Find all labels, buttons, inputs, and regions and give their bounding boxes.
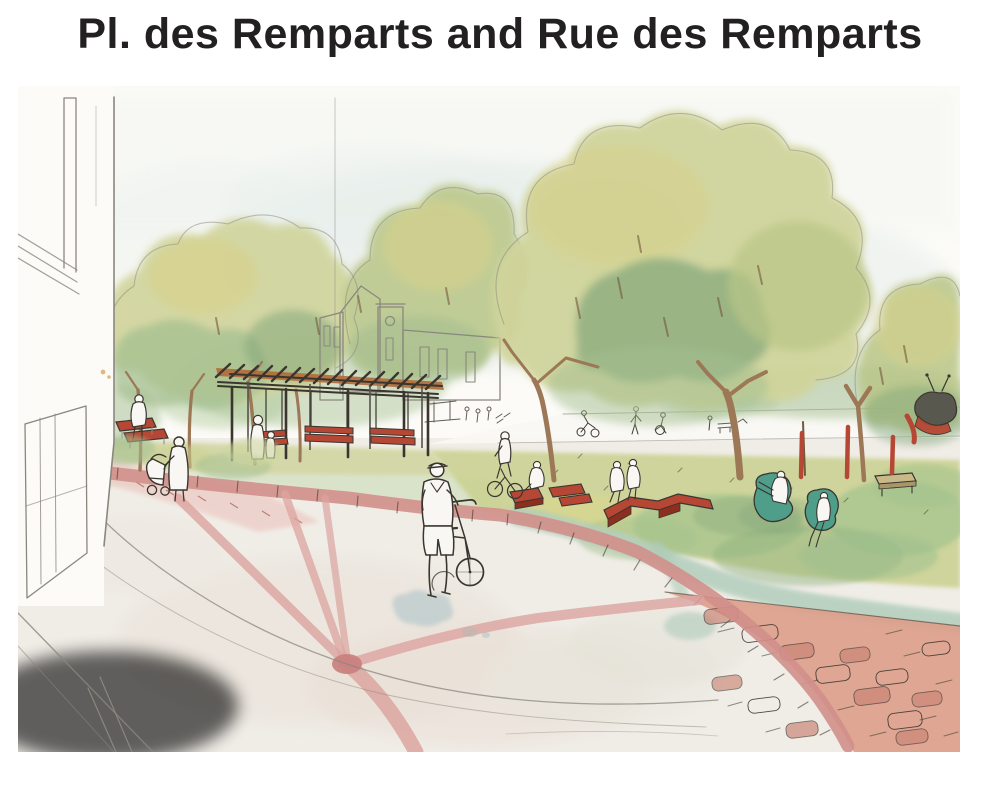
page-title: Pl. des Remparts and Rue des Remparts	[0, 10, 1000, 59]
facade-dot	[107, 375, 111, 379]
illustration-frame	[18, 86, 960, 752]
page: Pl. des Remparts and Rue des Remparts	[0, 0, 1000, 804]
facade-dot	[101, 370, 106, 375]
watercolor-rendering	[18, 86, 960, 752]
